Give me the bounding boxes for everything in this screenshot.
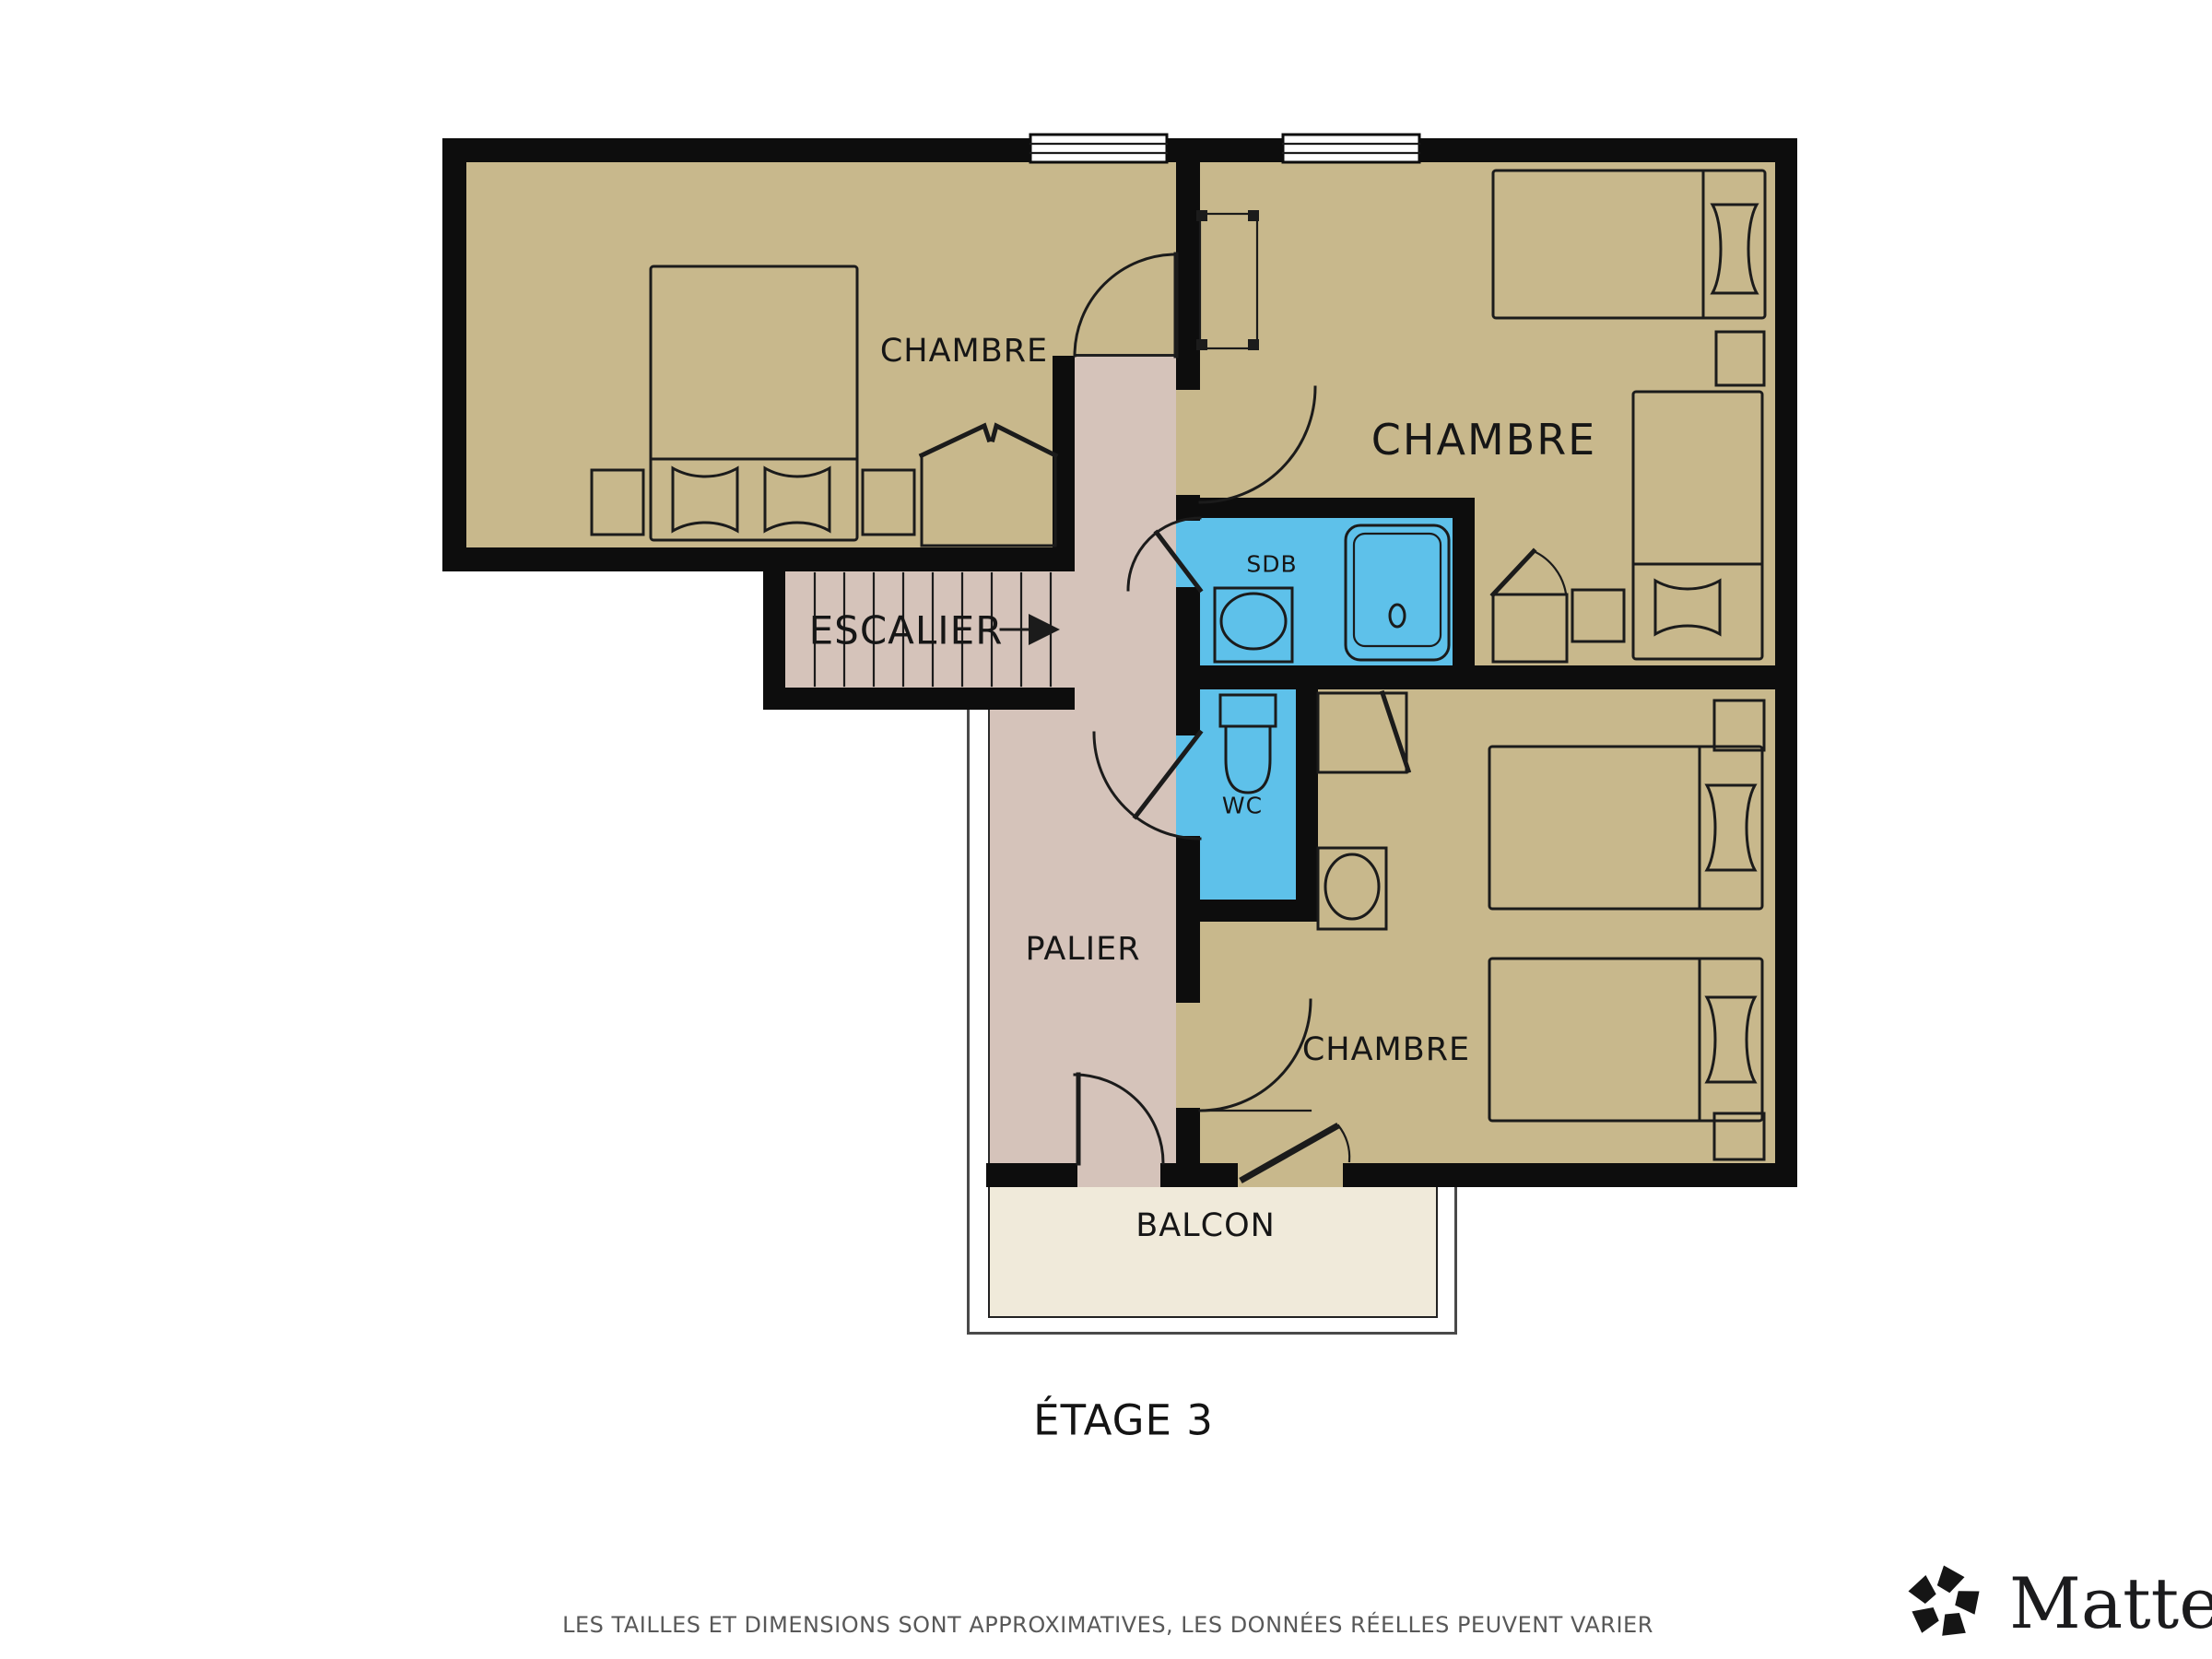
pillow-icon xyxy=(1712,205,1757,293)
nightstand-icon xyxy=(1714,700,1764,750)
wardrobe-icon xyxy=(1493,551,1567,662)
pillow-icon xyxy=(1707,997,1755,1082)
door-arc-icon xyxy=(1075,1075,1163,1163)
matterport-wordmark: Matterport xyxy=(2009,1562,2212,1644)
washbasin-icon xyxy=(1318,848,1386,929)
door-arc-icon xyxy=(1075,254,1176,356)
room-label-chambre-top-right: CHAMBRE xyxy=(1371,415,1596,465)
double-bed-icon xyxy=(651,266,857,540)
single-bed-icon xyxy=(1489,747,1762,909)
room-label-sdb: SDB xyxy=(1246,551,1297,578)
pillow-icon xyxy=(673,468,737,531)
bathtub-icon xyxy=(1346,525,1449,660)
toilet-icon xyxy=(1220,695,1276,793)
pillow-icon xyxy=(1655,581,1720,634)
door-arc-icon xyxy=(1200,1000,1311,1111)
window-icon xyxy=(1030,135,1167,162)
floor-title: ÉTAGE 3 xyxy=(1033,1396,1214,1445)
room-label-palier: PALIER xyxy=(1025,931,1140,968)
door-arc-icon xyxy=(1200,387,1315,502)
bathroom-sink-icon xyxy=(1215,588,1292,662)
window-icon xyxy=(1283,135,1419,162)
matterport-brand: Matterport xyxy=(1902,1561,2212,1644)
single-bed-icon xyxy=(1633,392,1762,659)
wardrobe-icon xyxy=(922,426,1055,546)
room-label-balcon: BALCON xyxy=(1135,1207,1276,1244)
room-label-wc: WC xyxy=(1222,793,1263,819)
single-bed-icon xyxy=(1489,959,1762,1121)
door-arc-icon xyxy=(1094,733,1200,839)
nightstand-icon xyxy=(863,470,914,535)
nightstand-icon xyxy=(592,470,643,535)
floor-plan-page: { "rooms": { "chambre_top_left": { "labe… xyxy=(0,0,2212,1659)
nightstand-icon xyxy=(1572,590,1624,641)
nightstand-icon xyxy=(1716,332,1764,385)
door-arc-icon xyxy=(1241,1125,1349,1181)
room-label-escalier: ESCALIER xyxy=(809,608,1004,653)
door-arc-icon xyxy=(1128,518,1200,590)
stairs-arrow-icon xyxy=(1029,614,1060,645)
disclaimer-text: LES TAILLES ET DIMENSIONS SONT APPROXIMA… xyxy=(562,1612,1653,1638)
crib-icon xyxy=(1196,210,1259,350)
matterport-logo-icon xyxy=(1902,1561,1985,1644)
room-label-chambre-bottom: CHAMBRE xyxy=(1302,1031,1470,1068)
wardrobe-icon xyxy=(1318,693,1408,772)
pillow-icon xyxy=(765,468,829,531)
pillow-icon xyxy=(1707,785,1755,870)
single-bed-icon xyxy=(1493,171,1765,318)
room-label-chambre-top-left: CHAMBRE xyxy=(880,333,1048,370)
